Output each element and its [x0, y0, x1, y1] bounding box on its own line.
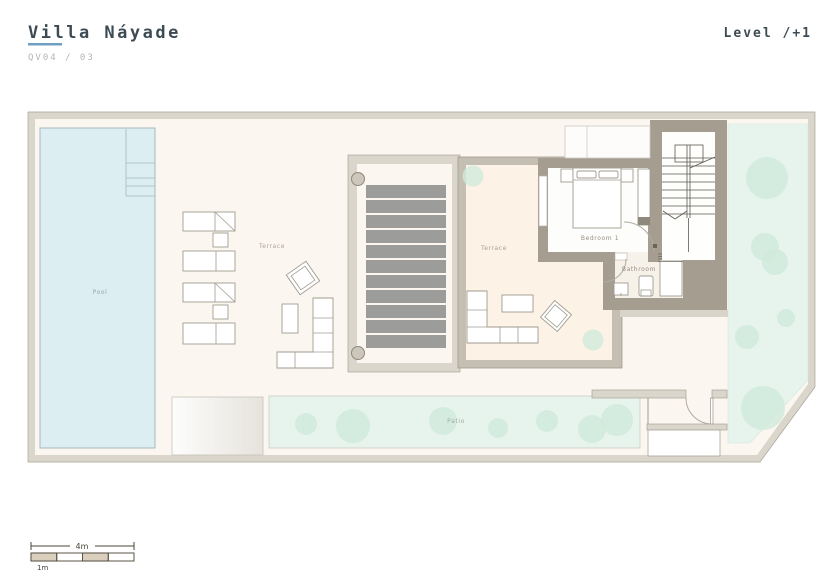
pillow [577, 171, 596, 178]
shower [658, 254, 683, 296]
potted-plant-icon [583, 330, 604, 351]
shrub-icon [735, 325, 759, 349]
pergola-louvers [366, 185, 446, 348]
title-underline [28, 43, 62, 46]
entry-steps [648, 430, 720, 456]
sun-lounger [183, 251, 235, 271]
page-title: Villa Náyade [28, 23, 181, 43]
sun-lounger [183, 212, 235, 231]
shrub-icon [488, 418, 508, 438]
scale-bar: 4m 1m [31, 542, 134, 572]
scale-total-label: 4m [76, 542, 89, 551]
door-leaf [711, 398, 714, 424]
sink [614, 283, 628, 296]
potted-plant-icon [463, 166, 484, 187]
room-label-bedroom: Bedroom 1 [581, 235, 619, 242]
shrub-icon [777, 309, 795, 327]
room-label-terrace-indoor: Terrace [480, 245, 507, 252]
wall [715, 120, 727, 260]
door-stop [653, 244, 657, 248]
ramp [172, 397, 263, 455]
tree-icon [762, 249, 788, 275]
pergola-post [352, 347, 365, 360]
room-label-patio: Patio [447, 418, 465, 425]
shrub-icon [536, 410, 558, 432]
bathroom: Bathroom [603, 252, 728, 317]
wall [712, 390, 727, 398]
outdoor-chair [282, 304, 298, 333]
pergola-post [352, 173, 365, 186]
wall [538, 158, 662, 168]
door-jamb [615, 253, 627, 260]
double-bed [573, 168, 621, 228]
drawing-number: QV04 / 03 [28, 53, 95, 63]
level-indicator: Level /+1 [724, 26, 812, 41]
side-table [213, 305, 228, 319]
wall-ledge [620, 310, 728, 317]
pergola [348, 155, 460, 372]
wall [683, 252, 727, 310]
wall [592, 390, 686, 398]
coffee-table [502, 295, 533, 312]
patio: Patio [269, 396, 640, 448]
room-label-bathroom: Bathroom [622, 266, 656, 273]
nightstand [561, 169, 573, 182]
floor-plan-sheet: Villa Náyade QV04 / 03 Level /+1 Patio [0, 0, 840, 584]
room-label-pool: Pool [93, 289, 108, 296]
pool: Pool [40, 128, 155, 448]
wall [647, 424, 727, 430]
side-table [213, 233, 228, 247]
room-label-terrace-outdoor: Terrace [258, 243, 285, 250]
wardrobe [638, 169, 650, 225]
bedroom-1: Bedroom 1 [538, 158, 662, 262]
shrub-icon [295, 413, 317, 435]
pool-water [40, 128, 155, 448]
planter [565, 126, 650, 158]
nightstand [621, 169, 633, 182]
sun-lounger [183, 323, 235, 344]
tree-icon [741, 386, 785, 430]
tree-icon [601, 404, 633, 436]
scale-unit-label: 1m [37, 564, 48, 572]
tree-icon [336, 409, 370, 443]
pillow [599, 171, 618, 178]
sun-lounger [183, 283, 235, 302]
wall [650, 120, 662, 168]
tree-icon [746, 157, 788, 199]
toilet [639, 276, 653, 296]
window [539, 176, 547, 226]
wall [603, 298, 693, 310]
